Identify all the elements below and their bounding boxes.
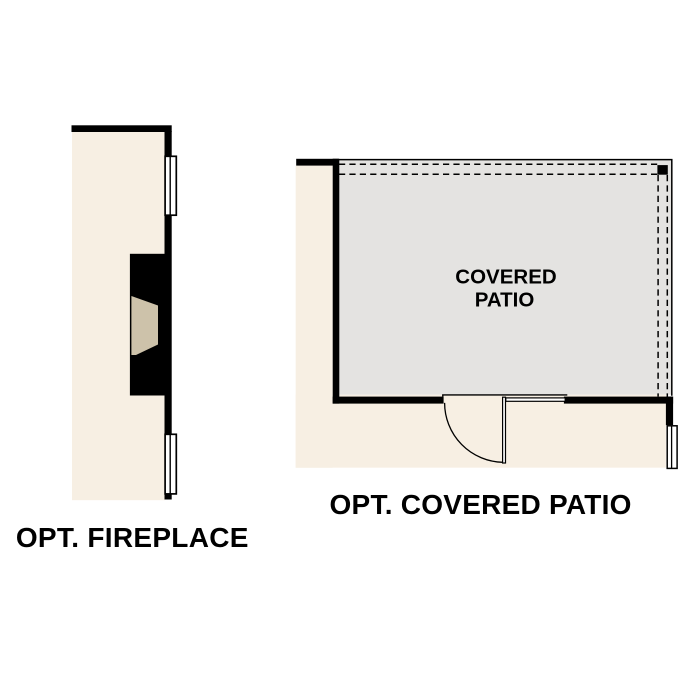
svg-text:PATIO: PATIO: [475, 288, 535, 311]
svg-text:COVERED: COVERED: [455, 266, 556, 289]
svg-text:OPT. COVERED PATIO: OPT. COVERED PATIO: [330, 489, 632, 520]
svg-text:OPT. FIREPLACE: OPT. FIREPLACE: [16, 522, 249, 553]
